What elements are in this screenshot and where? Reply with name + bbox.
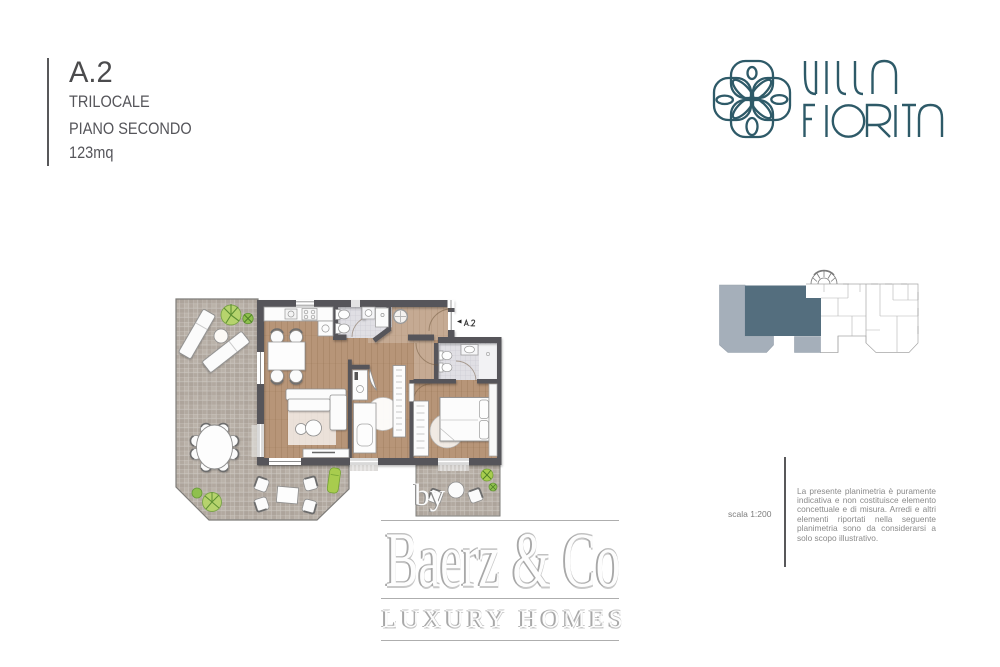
svg-text:by: by [414,477,446,512]
